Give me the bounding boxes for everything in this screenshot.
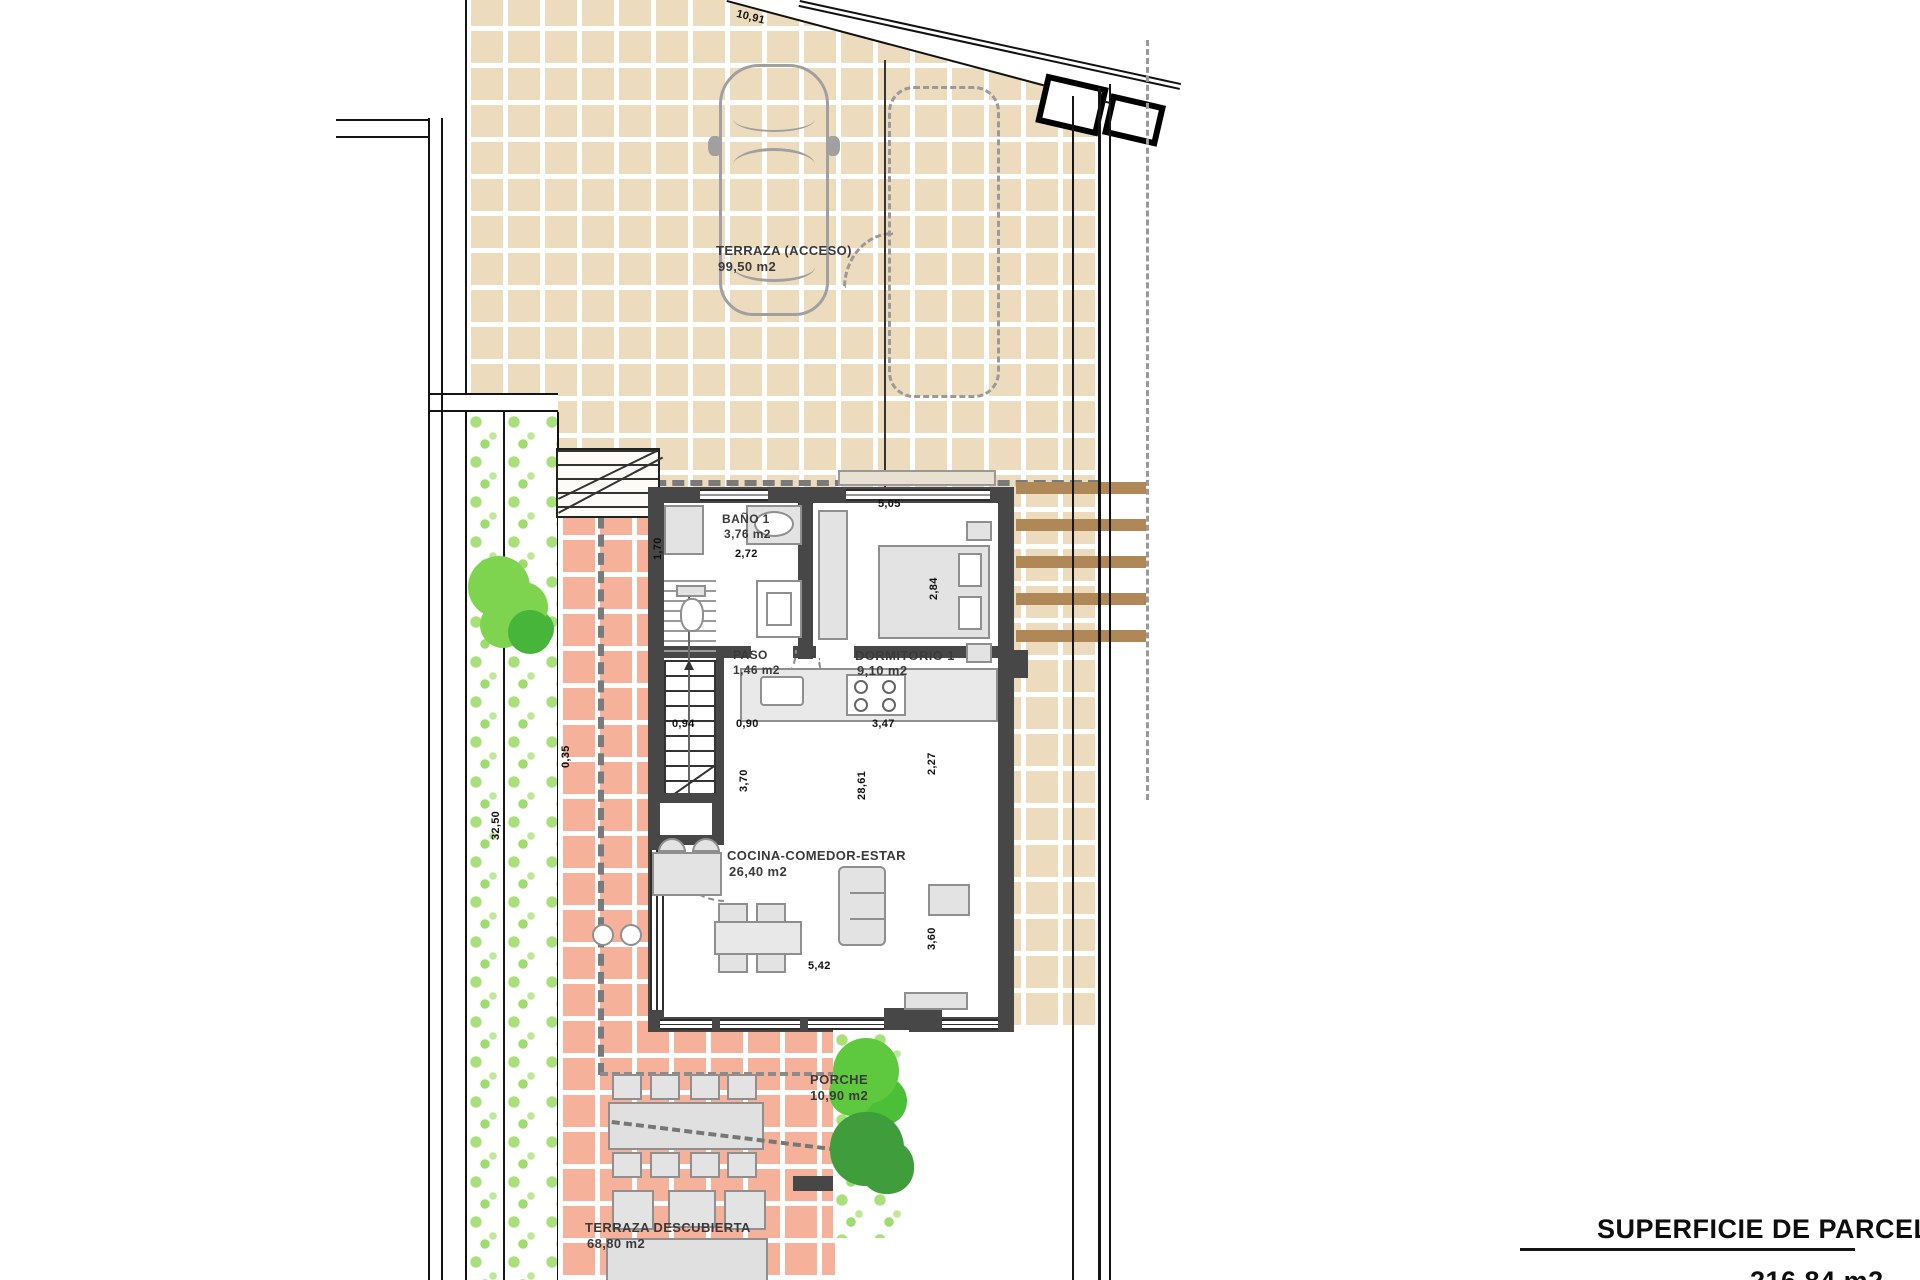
room-area-terraza-descubierta: 68,80 m2 (587, 1236, 645, 1251)
dim-stair-length: 3,70 (738, 769, 750, 792)
window-mullion (800, 1019, 808, 1030)
setback-line (598, 480, 604, 1075)
axis-dashed-line (1146, 40, 1149, 800)
patio-chair (727, 1152, 757, 1178)
wall-pilaster (1014, 650, 1028, 678)
boundary-line-right (1109, 84, 1111, 1280)
entry-steps (556, 448, 660, 518)
side-table (928, 884, 970, 916)
door-opening (816, 646, 854, 658)
boundary-line-right (1072, 96, 1074, 1280)
room-label-cocina: COCINA-COMEDOR-ESTAR (727, 848, 906, 863)
sofa-cushion-line (850, 892, 884, 894)
boundary-line-right (1098, 88, 1101, 1280)
kitchen-sink (760, 676, 804, 706)
pillow (958, 553, 982, 587)
boundary-tick (336, 119, 430, 121)
parking-projection-dashed (888, 86, 1000, 398)
bench (904, 992, 968, 1010)
pillow (958, 596, 982, 630)
room-area-paso: 1,46 m2 (733, 663, 780, 677)
wall-break-line (429, 393, 558, 395)
sofa (838, 866, 886, 946)
patio-chair (727, 1074, 757, 1100)
stove-burner (882, 680, 896, 694)
wardrobe (818, 510, 848, 640)
planter (592, 924, 614, 946)
shower-drain (766, 592, 792, 626)
window-bath (700, 489, 768, 501)
room-label-terraza-acceso: TERRAZA (ACCESO) (716, 243, 852, 258)
car-hood-line (733, 106, 815, 132)
stairs-arrow (684, 660, 694, 670)
patio-chair (690, 1152, 720, 1178)
room-area-bano1: 3,76 m2 (724, 527, 771, 541)
dim-living-depth: 3,60 (926, 927, 938, 950)
dim-dorm-width: 5,05 (878, 498, 901, 510)
patio-chair (612, 1074, 642, 1100)
room-label-paso: PASO (733, 648, 768, 662)
dim-side-right: 28,61 (856, 771, 868, 800)
gate-structure (1102, 93, 1166, 147)
planter (620, 924, 642, 946)
room-label-dormitorio1: DORMITORIO 1 (855, 648, 955, 663)
dim-kitchen-depth: 2,27 (926, 752, 938, 775)
room-label-bano1: BAÑO 1 (722, 512, 770, 526)
boundary-line-left (428, 118, 430, 1280)
garden-strip (465, 412, 559, 1280)
dim-bath-depth: 1,70 (652, 537, 664, 560)
boundary-tick (336, 136, 430, 138)
title-underline (1520, 1248, 1855, 1251)
toilet-tank (676, 585, 706, 597)
room-area-dormitorio1: 9,10 m2 (857, 663, 908, 678)
stove (846, 674, 906, 716)
stove-burner (854, 698, 868, 712)
room-label-porche: PORCHE (810, 1072, 868, 1087)
dim-bath-width: 2,72 (735, 548, 758, 560)
patio-chair (650, 1074, 680, 1100)
dim-kitchen-width: 3,47 (872, 718, 895, 730)
pergola-bar (1016, 630, 1146, 642)
dim-step-width: 0,35 (560, 745, 572, 768)
bath-closet (664, 505, 704, 555)
fence-line (465, 0, 467, 395)
tree (508, 610, 552, 654)
nightstand (966, 521, 992, 541)
parcel-title: SUPERFICIE DE PARCELA (1597, 1214, 1920, 1245)
tree (468, 556, 530, 618)
stove-burner (854, 680, 868, 694)
nightstand (966, 643, 992, 663)
dining-table (714, 921, 802, 955)
window-mullion (712, 1019, 720, 1030)
sofa-cushion-line (850, 918, 884, 920)
dim-living-width: 5,42 (808, 960, 831, 972)
pergola-bar (1016, 482, 1146, 494)
toilet-bowl (680, 598, 704, 632)
window-sill (838, 470, 996, 486)
floor-plan: TERRAZA (ACCESO) 99,50 m2 BAÑO 1 3,76 m2… (0, 0, 1920, 1280)
tree (830, 1112, 904, 1186)
room-area-terraza-acceso: 99,50 m2 (718, 259, 776, 274)
car-mirror (826, 136, 840, 156)
window-living-side (942, 1019, 998, 1030)
room-area-cocina: 26,40 m2 (729, 864, 787, 879)
patio-chair (650, 1152, 680, 1178)
understair-storage-inner (660, 803, 712, 835)
kitchen-island (652, 852, 722, 896)
patio-chair (612, 1152, 642, 1178)
wall-right (998, 487, 1014, 1032)
parcel-area-value: 216,84 m2 (1750, 1266, 1884, 1280)
pergola-bar (1016, 519, 1146, 531)
pergola-bar (1016, 556, 1146, 568)
garden-divider-line (503, 412, 505, 1280)
porch-corner-block (884, 1008, 942, 1032)
room-area-porche: 10,90 m2 (810, 1088, 868, 1103)
patio-chair (690, 1074, 720, 1100)
window-bedroom (846, 489, 990, 501)
room-label-terraza-descubierta: TERRAZA DESCUBIERTA (585, 1220, 751, 1235)
pergola-bar (1016, 593, 1146, 605)
car-windshield (733, 148, 815, 182)
stove-burner (882, 698, 896, 712)
dim-stair-width: 0,94 (672, 718, 695, 730)
dim-pass-width: 0,90 (736, 718, 759, 730)
dim-side-left: 32,50 (490, 811, 502, 840)
window-living-front (660, 1019, 886, 1030)
boundary-line-left (441, 118, 443, 1280)
car-mirror (708, 136, 722, 156)
dim-dorm-depth: 2,84 (928, 577, 940, 600)
